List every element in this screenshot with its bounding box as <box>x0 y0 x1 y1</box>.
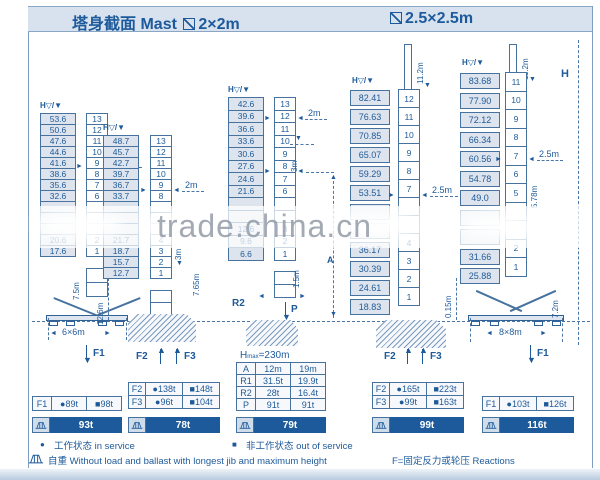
arrow-down-icon: ▼ <box>529 76 536 83</box>
tower5-72-dim: 7.2m <box>551 286 560 318</box>
force-down-icon: ▼ <box>527 356 536 365</box>
in-service-text: 工作状态 in service <box>54 438 135 452</box>
dim-line <box>306 172 334 173</box>
hmax-label: Hmax=230m <box>240 350 289 361</box>
weight-badge-5: 116t <box>482 417 574 433</box>
force-up-icon: ▲ <box>173 346 182 355</box>
mast-cell: 8 <box>505 128 527 148</box>
tower5-base-dim: 8×8m <box>499 327 522 337</box>
tower2-force3-label: F3 <box>184 351 196 362</box>
height-cell: 54.78 <box>460 171 500 187</box>
tower5-width-dim: 2.5m <box>539 149 559 159</box>
mast-cell: 9 <box>398 143 420 162</box>
reaction-table-2: F2 ●138t ■148t F3 ●96t ■104t <box>128 383 220 409</box>
dim-line <box>537 160 563 161</box>
weight-badge-value: 93t <box>50 417 122 433</box>
weight-badge-2: 78t <box>128 417 220 433</box>
arrow-left-icon: ► <box>264 115 271 122</box>
mast-cell: 1 <box>505 257 527 277</box>
tower2-header: H▽/▼ <box>103 123 125 132</box>
tower4-015-dim: 0.15m <box>444 286 453 318</box>
dim-line <box>182 191 204 192</box>
arrow-right-icon: ◄ <box>421 192 428 199</box>
tower5-header: H▽/▼ <box>462 58 484 67</box>
force-down-icon: ▼ <box>83 356 92 365</box>
mast-cell: 1 <box>150 267 172 279</box>
mast-cell: 5 <box>505 183 527 203</box>
mast-cell <box>150 302 172 315</box>
height-cell: 24.6 <box>228 172 264 186</box>
tower1-header: H▽/▼ <box>40 101 62 110</box>
height-cell: 70.85 <box>350 128 390 144</box>
tower4-heights: 82.4176.6370.8565.0759.2953.5136.1730.39… <box>350 90 390 318</box>
tower2-mast-base-cells <box>150 291 172 315</box>
crane-weight-icon <box>482 417 500 433</box>
dim-line <box>108 278 109 320</box>
tower4-top-extension <box>404 44 412 91</box>
table-cell: F1 <box>32 396 52 411</box>
weight-badge-value: 78t <box>146 417 220 433</box>
table-cell: 91t <box>290 398 326 411</box>
title-right: 2.5×2.5m <box>388 10 473 28</box>
tower5-base-beam <box>468 315 564 321</box>
weight-badge-4: 99t <box>372 417 464 433</box>
table-cell: ●99t <box>389 395 427 409</box>
tower3-header: H▽/▼ <box>228 85 250 94</box>
bogie <box>66 321 75 326</box>
arrow-right-icon: ► <box>104 330 111 337</box>
tower4-header: H▽/▼ <box>352 76 374 85</box>
mast-cell: 6 <box>505 165 527 185</box>
tower1-leg <box>53 297 98 317</box>
arrow-right-icon: ◄ <box>173 187 180 194</box>
height-cell: 66.34 <box>460 132 500 148</box>
r2-arrow-icon: ◄ <box>258 293 265 300</box>
title-right-size: 2.5×2.5m <box>405 10 473 27</box>
title-left-en: Mast <box>140 16 176 33</box>
mast-cell: 3 <box>398 251 420 270</box>
in-service-mark: ● <box>40 440 45 449</box>
tower4-force3-label: F3 <box>430 351 442 362</box>
table-cell: ■163t <box>426 395 464 409</box>
bogie <box>49 321 58 326</box>
hmax-sub: max <box>247 354 258 360</box>
mast-cell: 12 <box>274 110 296 124</box>
arrow-right-icon: ◄ <box>297 115 304 122</box>
tower3-15-dim: 1.5m <box>292 262 301 288</box>
table-cell: ■104t <box>182 395 220 409</box>
height-cell: 30.6 <box>228 147 264 161</box>
tower1-height-dim: 7.5m <box>72 262 81 300</box>
weight-badge-value: 116t <box>500 417 574 433</box>
arrow-right-icon: ► <box>540 330 547 337</box>
table-cell: ●165t <box>389 382 427 396</box>
mast-cell: 9 <box>505 109 527 129</box>
dim-line <box>470 318 471 342</box>
force-up-icon: ▲ <box>404 346 413 355</box>
hmax-post: =230m <box>259 350 290 361</box>
height-cell: 24.61 <box>350 280 390 296</box>
mast-cell: 10 <box>505 91 527 111</box>
mast-cell: 10 <box>274 135 296 149</box>
height-cell: 30.39 <box>350 261 390 277</box>
tower3-foundation <box>246 320 298 346</box>
weight-badge-3: 79t <box>236 417 326 433</box>
crane-weight-icon <box>28 452 44 470</box>
reaction-table-5: F1 ●103t ■126t <box>482 397 574 411</box>
tower4-top-dim: 11.2m <box>416 48 425 84</box>
weight-badge-value: 79t <box>254 417 326 433</box>
bottom-strip <box>0 469 600 480</box>
mast-cell: 1 <box>274 247 296 261</box>
reaction-table-4: F2 ●165t ■223t F3 ●99t ■163t <box>372 383 464 409</box>
mast-cell: 7 <box>505 146 527 166</box>
crane-weight-icon <box>128 417 146 433</box>
reactions-text: F=固定反力或轮压 Reactions <box>392 453 515 467</box>
arrow-left-icon: ◄ <box>50 330 57 337</box>
height-cell: 76.63 <box>350 109 390 125</box>
right-border <box>592 6 593 468</box>
height-cell: 36.6 <box>228 122 264 136</box>
table-cell: ●96t <box>145 395 183 409</box>
tower2-width-dim: 2m <box>185 180 198 190</box>
arrow-down-icon: ▼ <box>295 135 302 142</box>
table-cell: F2 <box>372 382 390 396</box>
height-cell: 83.68 <box>460 73 500 89</box>
table-row: F3 ●99t ■163t <box>372 395 464 409</box>
mast-cell: 13 <box>274 97 296 111</box>
height-cell: 39.6 <box>228 110 264 124</box>
table-cell: ●89t <box>51 396 87 411</box>
height-cell: 25.88 <box>460 268 500 284</box>
height-cell: 21.6 <box>228 185 264 199</box>
mast-cell: 11 <box>398 107 420 126</box>
anchor-right-icon: ◄ <box>297 168 304 175</box>
watermark-blob <box>34 212 124 238</box>
tower4-foundation <box>376 320 446 348</box>
title-left: 塔身截面 Mast 2×2m <box>72 10 240 34</box>
bogie <box>534 321 543 326</box>
mast-cell: 11 <box>274 122 296 136</box>
force-up-icon: ▲ <box>419 346 428 355</box>
dim-line <box>562 318 563 342</box>
tower3-a-dim: A <box>327 255 334 265</box>
dim-line <box>126 318 127 340</box>
reaction-table-3: A 12m 19m R1 31.5t 19.9t R2 28t 16.4t P … <box>236 363 326 411</box>
height-cell: 65.07 <box>350 147 390 163</box>
tower3-p-label: P <box>291 304 298 315</box>
tower2-765-dim: 7.65m <box>192 256 201 296</box>
crane-weight-icon <box>372 417 390 433</box>
table-cell: P <box>236 398 256 411</box>
bogie <box>490 321 499 326</box>
tower1-base-dim: 6×6m <box>62 327 85 337</box>
section-symbol-icon <box>183 18 195 30</box>
out-service-mark: ■ <box>232 440 237 449</box>
mast-cell: 7 <box>274 172 296 186</box>
title-left-zh: 塔身截面 <box>72 16 136 33</box>
table-cell: ●138t <box>145 382 183 396</box>
watermark-text: trade.china.cn <box>157 208 372 245</box>
tower5-heights: 83.6877.9072.1266.3460.5654.7849.031.662… <box>460 73 500 288</box>
table-cell: F2 <box>128 382 146 396</box>
tower5-578-dim: 5.78m <box>530 168 539 208</box>
height-cell: 31.66 <box>460 249 500 265</box>
mast-section-diagram: 塔身截面 Mast 2×2m 2.5×2.5m H▽/▼ 53.650.647.… <box>0 0 600 480</box>
h-ref-line <box>578 40 579 345</box>
tower5-leg <box>510 290 556 312</box>
tower5-top-extension <box>509 44 517 74</box>
arrow-right-icon: ◄ <box>528 156 535 163</box>
tower4-force2-label: F2 <box>384 351 396 362</box>
mast-cell: 2 <box>398 269 420 288</box>
bogie <box>552 321 561 326</box>
table-cell: ■148t <box>182 382 220 396</box>
table-cell: F1 <box>482 396 500 411</box>
tower3-r2-label: R2 <box>232 298 245 309</box>
height-cell: 49.0 <box>460 190 500 206</box>
height-cell: 82.41 <box>350 90 390 106</box>
bogie <box>471 321 480 326</box>
section-symbol-icon <box>390 12 402 24</box>
dim-line <box>48 318 49 340</box>
mast-cell: 8 <box>398 161 420 180</box>
table-row: F2 ●138t ■148t <box>128 382 220 396</box>
arrow-left-icon: ► <box>388 192 395 199</box>
table-cell: ■126t <box>536 396 574 411</box>
tower3-width-dim: 2m <box>308 108 321 118</box>
weight-badge-value: 99t <box>390 417 464 433</box>
height-cell: 27.6 <box>228 160 264 174</box>
arrow-left-icon: ► <box>76 163 83 170</box>
height-cell: 59.29 <box>350 166 390 182</box>
crane-weight-icon <box>236 417 254 433</box>
height-cell: 53.51 <box>350 185 390 201</box>
arrow-left-icon: ► <box>495 156 502 163</box>
mast-cell: 7 <box>398 179 420 198</box>
watermark-band: trade.china.cn <box>29 206 592 248</box>
dim-line <box>305 119 327 120</box>
dim-line <box>456 278 457 320</box>
tower2-force2-label: F2 <box>136 351 148 362</box>
arrow-left-icon: ◄ <box>486 330 493 337</box>
watermark-blob <box>459 214 539 238</box>
height-cell: 33.6 <box>228 135 264 149</box>
r2-arrow-icon: ► <box>299 293 306 300</box>
height-cell: 6.6 <box>228 247 264 261</box>
force-up-icon: ▲ <box>157 346 166 355</box>
height-cell: 77.90 <box>460 93 500 109</box>
table-row: F3 ●96t ■104t <box>128 395 220 409</box>
crane-weight-icon <box>32 417 50 433</box>
table-row: F1 ●103t ■126t <box>482 396 574 411</box>
bogie <box>115 321 124 326</box>
mast-cell: 1 <box>398 287 420 306</box>
tower4-width-dim: 2.5m <box>432 185 452 195</box>
dim-line <box>290 144 314 145</box>
mast-cell: 10 <box>398 125 420 144</box>
height-cell: 60.56 <box>460 151 500 167</box>
table-row: F2 ●165t ■223t <box>372 382 464 396</box>
table-cell: ■98t <box>86 396 122 411</box>
tower5-force-label: F1 <box>537 348 549 359</box>
title-left-size: 2×2m <box>198 16 239 33</box>
out-service-text: 非工作状态 out of service <box>246 438 353 452</box>
arrow-up-icon: ▲ <box>330 174 337 181</box>
table-cell: ■223t <box>426 382 464 396</box>
anchor-left-icon: ► <box>264 168 271 175</box>
tower4-mast: 1211109874321 <box>398 90 420 306</box>
tower1-force-label: F1 <box>93 348 105 359</box>
dim-line <box>430 196 458 197</box>
weight-badge-1: 93t <box>32 417 122 433</box>
arrow-left-icon: ► <box>140 187 147 194</box>
height-cell: 72.12 <box>460 112 500 128</box>
reaction-table-1: F1 ●89t ■98t <box>32 397 122 411</box>
table-cell: 91t <box>255 398 291 411</box>
self-weight-text: 自重 Without load and ballast with longest… <box>48 453 327 467</box>
table-row: P 91t 91t <box>236 398 326 411</box>
table-cell: F3 <box>372 395 390 409</box>
mast-cell: 11 <box>505 72 527 92</box>
arrow-down-icon: ▼ <box>330 311 337 318</box>
table-row: F1 ●89t ■98t <box>32 396 122 411</box>
height-cell: 18.83 <box>350 299 390 315</box>
h-label: H <box>561 68 569 80</box>
height-cell: 42.6 <box>228 97 264 111</box>
mast-cell: 12 <box>398 89 420 108</box>
tower2-126-dim: 12.6m <box>96 285 105 325</box>
arrow-down-icon: ▼ <box>176 260 183 267</box>
table-cell: F3 <box>128 395 146 409</box>
mast-cell: 6 <box>274 185 296 199</box>
tower2-foundation <box>128 314 196 342</box>
table-cell: ●103t <box>499 396 537 411</box>
arrow-down-icon: ▼ <box>424 82 431 89</box>
